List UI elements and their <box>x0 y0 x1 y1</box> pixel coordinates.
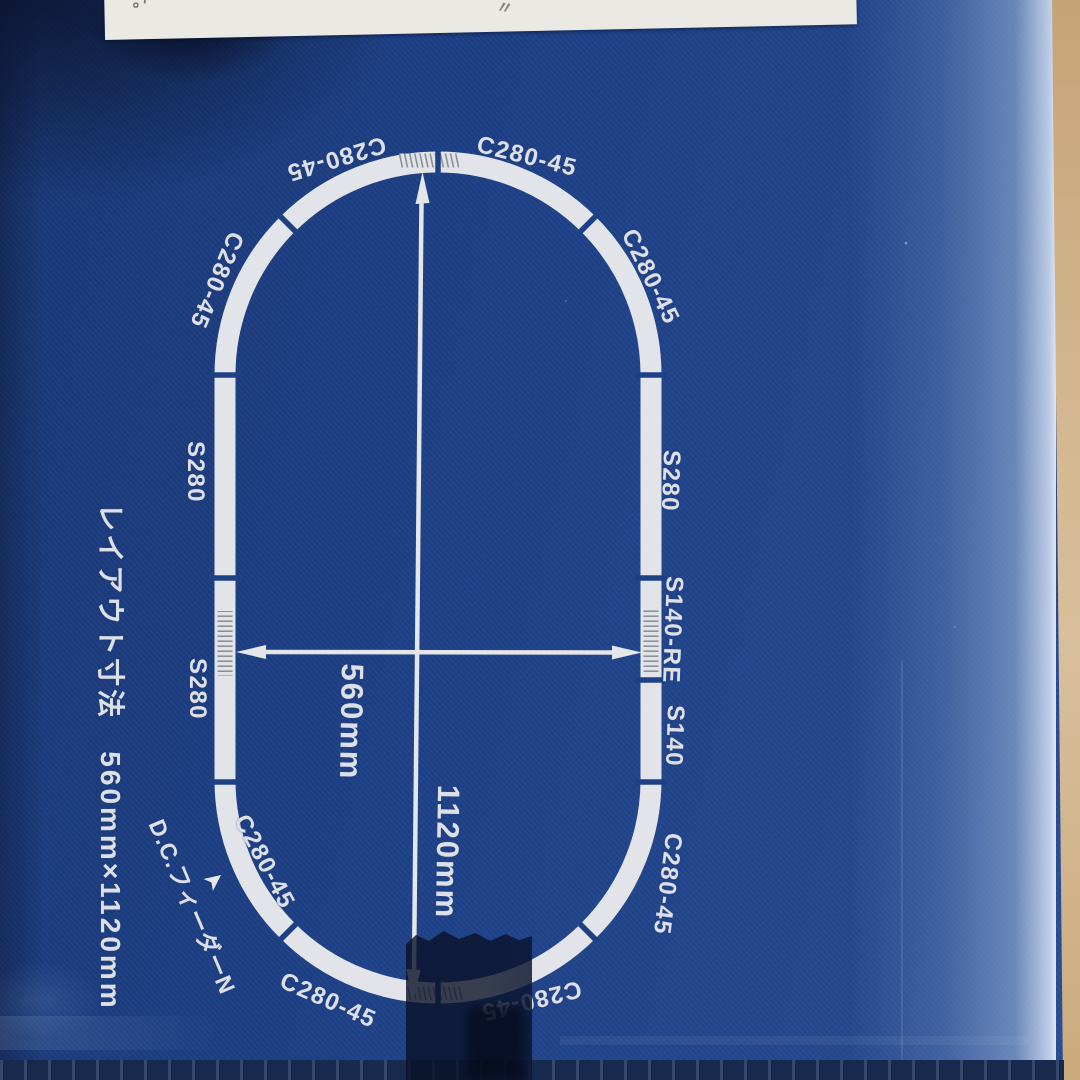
dark-tape-strip <box>406 928 532 1080</box>
width-arrow-shaft <box>263 652 616 653</box>
track-label-left-s280-upper: S280 <box>181 441 209 503</box>
scuff-mark-right <box>560 1036 1030 1045</box>
ditto-mark: 〃 <box>494 0 515 20</box>
height-arrow-head-top <box>416 172 430 204</box>
handwriting-mark: す。 <box>128 0 154 19</box>
box-edge-highlight <box>850 0 1056 1080</box>
track-label-left-s280-lower: S280 <box>183 658 211 720</box>
box-photo: C280-45 C280-45 C280-45 S280 S140-RE S14… <box>0 0 1080 1080</box>
track-label-right-s280: S280 <box>655 449 685 512</box>
scuff-mark-left <box>0 1016 340 1050</box>
box-bottom-edge <box>0 1060 1064 1080</box>
layout-size-caption: レイアウト寸法 560mm×1120mm <box>92 503 132 1010</box>
width-arrow-head-right <box>612 646 642 660</box>
box-crease-line <box>901 660 903 1080</box>
height-arrow-shaft <box>414 201 422 972</box>
width-arrow-head-left <box>236 645 266 659</box>
width-dimension-label: 560mm <box>332 663 370 780</box>
track-label-s140: S140 <box>659 704 689 767</box>
track-label-s140-re: S140-RE <box>656 576 688 685</box>
height-dimension-label: 1120mm <box>428 785 466 920</box>
